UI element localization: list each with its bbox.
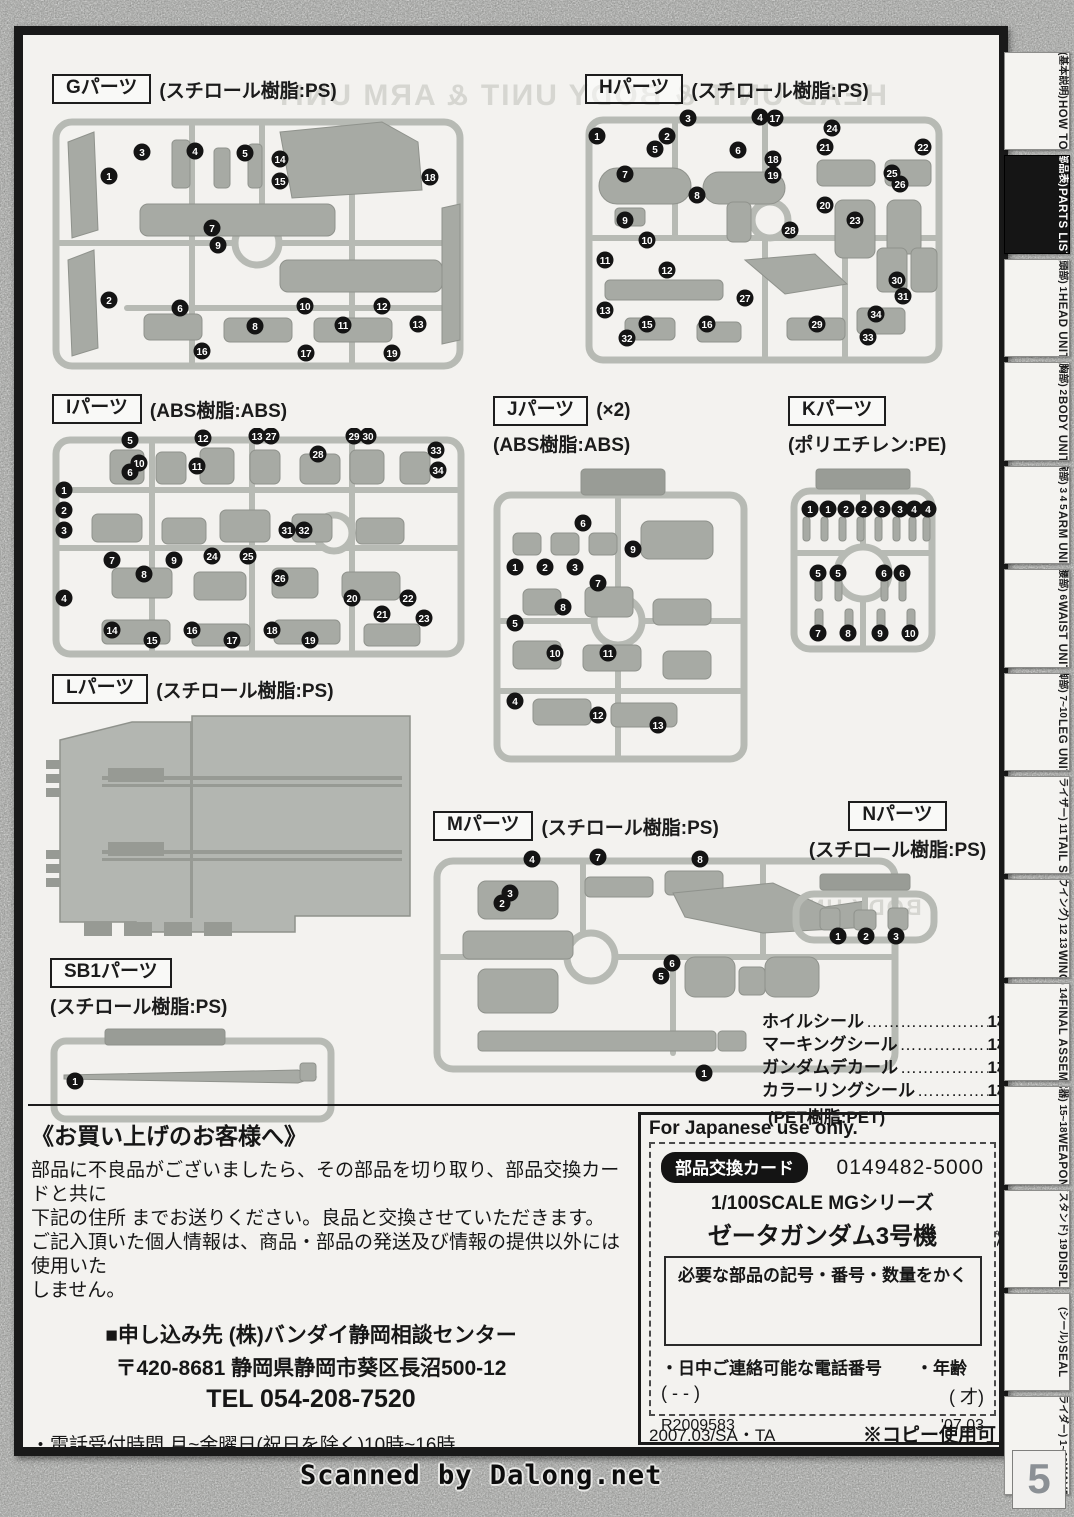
part-number-callout: 11 (335, 317, 352, 334)
tab-label-en: WING (1055, 950, 1068, 978)
svg-text:1: 1 (807, 505, 813, 516)
part-number-callout: 28 (782, 222, 799, 239)
svg-text:18: 18 (424, 173, 436, 184)
part-number-callout: 1 (67, 1073, 84, 1090)
svg-text:17: 17 (769, 114, 781, 125)
tab-label-jp: (ウイング) 12 13 (1057, 879, 1069, 948)
scanned-manual-page: { "document": { "bleed_text": "HEAD UNIT… (0, 0, 1074, 1517)
sprue-G-material: (スチロール樹脂:PS) (159, 76, 336, 103)
scan-watermark: Scanned by Dalong.net (300, 1460, 662, 1491)
sprue-SB1-runner-diagram: 1 (50, 1023, 335, 1131)
phone-number: TEL 054-208-7520 (31, 1385, 591, 1414)
phone-notes: ・電話受付時間 月~金曜日(祝日を除く)10時~16時 ・電話番号はよく確かめて… (31, 1432, 637, 1447)
section-tab-body-unit: (胸部) 2BODY UNIT (1004, 362, 1070, 460)
section-tab-weapons: (武器) 15~18WEAPONS (1004, 1086, 1070, 1184)
seal-count: 1枚 (988, 1010, 999, 1033)
svg-text:4: 4 (925, 505, 931, 516)
part-number-callout: 5 (653, 968, 670, 985)
part-number-callout: 13 (597, 302, 614, 319)
part-number-callout: 14 (272, 151, 289, 168)
part-number-callout: 4 (524, 851, 541, 868)
section-tab-how-to: (基本説明)HOW TO (1004, 52, 1070, 150)
tab-label-jp: (頭部) 1 (1057, 259, 1069, 292)
tab-label-jp: (部品表) (1057, 155, 1069, 186)
svg-text:1: 1 (835, 932, 841, 943)
part-number-callout: 34 (868, 306, 885, 323)
part-number-callout: 27 (737, 290, 754, 307)
part-number-callout: 12 (374, 298, 391, 315)
notice-heading: 《お買い上げのお客様へ》 (31, 1117, 637, 1151)
sprue-L-material: (スチロール樹脂:PS) (156, 676, 333, 703)
svg-text:4: 4 (911, 505, 917, 516)
tab-label-en: SEAL (1055, 1345, 1068, 1378)
part-number-callout: 14 (104, 622, 121, 639)
part-number-callout: 9 (166, 552, 183, 569)
part-number-callout: 24 (824, 120, 841, 137)
part-number-callout: 26 (272, 570, 289, 587)
sprue-I-label: Iパーツ (52, 394, 142, 424)
svg-text:3: 3 (572, 563, 578, 574)
part-number-callout: 5 (507, 615, 524, 632)
section-tab-leg-unit: (脚部) 7~10LEG UNIT (1004, 673, 1070, 771)
sprue-J-runner-diagram: 61239785101141213 (493, 461, 748, 766)
svg-text:15: 15 (274, 177, 286, 188)
sprue-K-runner-diagram: 11223344556678910 (788, 461, 938, 661)
part-number-callout: 13 (650, 717, 667, 734)
part-number-callout: 18 (264, 622, 281, 639)
svg-text:6: 6 (669, 959, 675, 970)
phone-blank: ( - - ) (661, 1383, 700, 1409)
dot-leader: ………………… (898, 1033, 988, 1056)
part-number-callout: 7 (590, 849, 607, 866)
sprue-H-material: (スチロール樹脂:PS) (691, 76, 868, 103)
page-frame: HEAD UNIT & BODY UNIT & ARM UNIT BODY UN… (14, 26, 1008, 1456)
part-number-callout: 2 (494, 895, 511, 912)
part-number-callout: 3 (567, 559, 584, 576)
sprue-N-label: Nパーツ (848, 801, 946, 831)
part-number-callout: 1 (830, 928, 847, 945)
section-tab-parts-list: (部品表)PARTS LIST (1004, 155, 1070, 253)
age-blank: ( 才) (949, 1383, 984, 1409)
part-number-callout: 19 (384, 345, 401, 362)
sprue-H-label: Hパーツ (585, 74, 683, 104)
part-number-callout: 15 (144, 632, 161, 649)
note-line: ・電話受付時間 月~金曜日(祝日を除く)10時~16時 (31, 1432, 637, 1447)
svg-text:4: 4 (61, 594, 67, 605)
svg-text:5: 5 (127, 436, 133, 447)
tab-label-jp: (ディスプレイスタンド) 19 (1057, 1190, 1069, 1250)
svg-text:24: 24 (826, 124, 838, 135)
svg-text:4: 4 (757, 113, 763, 124)
tab-label-jp: (脚部) 7~10 (1057, 673, 1069, 719)
svg-text:3: 3 (893, 932, 899, 943)
part-number-callout: 19 (765, 167, 782, 184)
section-tab-seal: (シール)SEAL (1004, 1293, 1070, 1391)
svg-text:7: 7 (109, 556, 115, 567)
svg-text:5: 5 (835, 569, 841, 580)
svg-text:7: 7 (595, 853, 601, 864)
svg-text:16: 16 (701, 320, 713, 331)
tab-label-en: HEAD UNIT (1055, 293, 1068, 358)
exchange-card-badge: 部品交換カード (661, 1152, 808, 1183)
part-number-callout: 21 (817, 139, 834, 156)
part-number-callout: 8 (136, 566, 153, 583)
svg-text:5: 5 (652, 145, 658, 156)
part-number-callout: 15 (272, 173, 289, 190)
notice-line: ご記入頂いた個人情報は、商品・部品の発送及び情報の提供以外には使用いた (31, 1231, 637, 1279)
sprue-L-runner-diagram (40, 708, 415, 948)
part-number-callout: 34 (430, 462, 447, 479)
part-number-callout: 31 (895, 288, 912, 305)
customer-notice: 《お買い上げのお客様へ》 部品に不良品がございましたら、その部品を切り取り、部品… (31, 1117, 637, 1447)
svg-text:11: 11 (338, 321, 349, 332)
parts-write-in-box: 必要な部品の記号・番号・数量をかく (664, 1256, 982, 1346)
part-number-callout: 12 (195, 430, 212, 447)
part-number-callout: 27 (263, 428, 280, 445)
page-number: 5 (1012, 1450, 1066, 1509)
svg-text:8: 8 (697, 855, 703, 866)
part-number-callout: 9 (617, 212, 634, 229)
svg-text:6: 6 (127, 468, 133, 479)
svg-text:6: 6 (580, 519, 586, 530)
svg-text:2: 2 (843, 505, 849, 516)
part-number-callout: 4 (56, 590, 73, 607)
sprue-I: Iパーツ(ABS樹脂:ABS)5121327293010611283334123… (52, 394, 467, 663)
seal-count: 1枚 (988, 1079, 999, 1102)
part-number-callout: 9 (210, 237, 227, 254)
part-number-callout: 17 (767, 110, 784, 127)
part-number-callout: 33 (428, 442, 445, 459)
sprue-SB1-material: (スチロール樹脂:PS) (50, 992, 335, 1019)
reference-number: R2009583 (661, 1417, 735, 1435)
svg-text:1: 1 (701, 1069, 707, 1080)
svg-text:1: 1 (106, 172, 112, 183)
seal-list-item: カラーリングシール………………1枚 (762, 1079, 999, 1102)
svg-text:14: 14 (274, 155, 286, 166)
svg-text:21: 21 (376, 610, 388, 621)
part-number-callout: 8 (692, 851, 709, 868)
svg-text:9: 9 (630, 545, 636, 556)
tab-label-jp: (腰部) 6 (1057, 569, 1069, 599)
svg-text:30: 30 (891, 276, 903, 287)
svg-text:14: 14 (106, 626, 118, 637)
svg-text:23: 23 (849, 216, 861, 227)
svg-text:4: 4 (529, 855, 535, 866)
svg-text:3: 3 (685, 114, 691, 125)
sprue-I-header: Iパーツ(ABS樹脂:ABS) (52, 394, 467, 424)
svg-text:3: 3 (139, 148, 145, 159)
sprue-G-runner-diagram: 13451415187926810111213161719 (52, 108, 467, 373)
svg-text:5: 5 (815, 569, 821, 580)
address-line: ■申し込み先 (株)バンダイ静岡相談センター (31, 1319, 591, 1349)
svg-text:6: 6 (177, 304, 183, 315)
svg-text:16: 16 (186, 626, 198, 637)
part-number-callout: 6 (876, 565, 893, 582)
svg-text:10: 10 (299, 302, 311, 313)
part-number-callout: 6 (122, 464, 139, 481)
part-number-callout: 16 (194, 343, 211, 360)
tab-label-en: PARTS LIST (1055, 188, 1068, 254)
part-number-callout: 5 (810, 565, 827, 582)
svg-text:13: 13 (599, 306, 611, 317)
page: HEAD UNIT & BODY UNIT & ARM UNIT BODY UN… (23, 35, 999, 1447)
svg-text:28: 28 (312, 450, 324, 461)
part-number-callout: 17 (298, 345, 315, 362)
svg-text:7: 7 (209, 224, 215, 235)
svg-text:3: 3 (897, 505, 903, 516)
svg-text:5: 5 (658, 972, 664, 983)
section-tab-arm-unit: (腕部) 3 4 5ARM UNIT (1004, 466, 1070, 564)
svg-text:11: 11 (600, 256, 611, 267)
card-date: '07.03 (941, 1417, 984, 1435)
svg-text:5: 5 (242, 149, 248, 160)
section-tab-final-assemble: (完成) 14FINAL ASSEMBLE (1004, 983, 1070, 1081)
svg-text:15: 15 (146, 636, 158, 647)
svg-text:2: 2 (861, 505, 867, 516)
tab-label-en: FINAL ASSEMBLE (1055, 999, 1068, 1081)
part-number-callout: 16 (184, 622, 201, 639)
svg-text:3: 3 (879, 505, 885, 516)
tab-label-en: ARM UNIT (1055, 511, 1068, 564)
sprue-J-material: (ABS樹脂:ABS) (493, 430, 748, 457)
section-tab-display-stand: (ディスプレイスタンド) 19DISPLAY STAND (1004, 1190, 1070, 1288)
part-number-callout: 5 (647, 141, 664, 158)
svg-text:3: 3 (61, 526, 67, 537)
part-number-callout: 6 (894, 565, 911, 582)
part-number-callout: 6 (575, 515, 592, 532)
part-number-callout: 12 (590, 707, 607, 724)
svg-text:12: 12 (376, 302, 388, 313)
svg-text:1: 1 (825, 505, 831, 516)
sprue-I-material: (ABS樹脂:ABS) (150, 396, 287, 423)
sprue-N-header: Nパーツ (790, 801, 999, 831)
part-number-callout: 3 (134, 144, 151, 161)
part-number-callout: 32 (296, 522, 313, 539)
part-number-callout: 7 (104, 552, 121, 569)
svg-text:6: 6 (735, 146, 741, 157)
seal-list-item: ホイルシール……………………1枚 (762, 1010, 999, 1033)
svg-text:2: 2 (542, 563, 548, 574)
part-number-callout: 15 (639, 316, 656, 333)
part-number-callout: 3 (874, 501, 891, 518)
part-number-callout: 25 (240, 548, 257, 565)
svg-text:22: 22 (402, 594, 414, 605)
sprue-H-runner-diagram: 1234175618198212224252620237910111227281… (585, 108, 945, 368)
scissors-icon: ✂ (987, 1230, 999, 1248)
tab-label-en: TAIL STABILIZER (1055, 835, 1068, 875)
part-number-callout: 20 (344, 590, 361, 607)
part-number-callout: 1 (802, 501, 819, 518)
product-code: 0149482-5000 (837, 1156, 984, 1180)
part-number-callout: 29 (809, 316, 826, 333)
tab-label-jp: (シール) (1057, 1307, 1069, 1344)
part-number-callout: 7 (590, 575, 607, 592)
svg-text:8: 8 (694, 191, 700, 202)
svg-text:31: 31 (897, 292, 909, 303)
part-number-callout: 20 (817, 197, 834, 214)
part-number-callout: 2 (659, 128, 676, 145)
sprue-L-header: Lパーツ(スチロール樹脂:PS) (52, 674, 415, 704)
tab-label-jp: (胸部) 2 (1057, 362, 1069, 394)
svg-text:2: 2 (664, 132, 670, 143)
section-divider (28, 1104, 999, 1106)
seal-list-item: マーキングシール…………………1枚 (762, 1033, 999, 1056)
part-number-callout: 5 (830, 565, 847, 582)
svg-text:17: 17 (226, 636, 238, 647)
seal-name: マーキングシール (762, 1033, 898, 1056)
svg-text:1: 1 (512, 563, 518, 574)
sprue-SB1-label: SB1パーツ (50, 958, 172, 988)
part-number-callout: 11 (189, 458, 206, 475)
svg-text:26: 26 (274, 574, 286, 585)
part-number-callout: 8 (840, 625, 857, 642)
svg-text:32: 32 (621, 334, 633, 345)
svg-text:22: 22 (917, 143, 929, 154)
part-number-callout: 32 (619, 330, 636, 347)
part-number-callout: 17 (224, 632, 241, 649)
svg-text:28: 28 (784, 226, 796, 237)
age-field-label: ・年齢 (916, 1354, 967, 1379)
part-number-callout: 10 (547, 645, 564, 662)
part-number-callout: 23 (416, 610, 433, 627)
model-name: ゼータガンダム3号機 (661, 1216, 984, 1251)
svg-text:8: 8 (845, 629, 851, 640)
svg-text:10: 10 (549, 649, 561, 660)
svg-text:16: 16 (196, 347, 208, 358)
part-number-callout: 11 (597, 252, 614, 269)
sprue-K-label: Kパーツ (788, 396, 886, 426)
svg-text:6: 6 (899, 569, 905, 580)
series-name: 1/100SCALE MGシリーズ (661, 1188, 984, 1215)
svg-text:12: 12 (661, 266, 673, 277)
sprue-K: Kパーツ(ポリエチレン:PE)11223344556678910 (788, 396, 946, 661)
svg-text:33: 33 (862, 333, 874, 344)
tab-label-en: HOW TO (1055, 100, 1068, 150)
svg-text:4: 4 (512, 697, 518, 708)
part-number-callout: 19 (302, 632, 319, 649)
section-tab-head-unit: (頭部) 1HEAD UNIT (1004, 259, 1070, 357)
address-line: 〒420-8681 静岡県静岡市葵区長沼500-12 (31, 1352, 591, 1382)
svg-text:25: 25 (242, 552, 254, 563)
seal-count: 1枚 (988, 1033, 999, 1056)
svg-text:11: 11 (603, 649, 614, 660)
svg-text:26: 26 (894, 180, 906, 191)
svg-text:15: 15 (641, 320, 653, 331)
part-number-callout: 30 (889, 272, 906, 289)
service-center-address: ■申し込み先 (株)バンダイ静岡相談センター 〒420-8681 静岡県静岡市葵… (31, 1319, 591, 1414)
svg-text:12: 12 (592, 711, 604, 722)
svg-text:29: 29 (811, 320, 823, 331)
sprue-H-header: Hパーツ(スチロール樹脂:PS) (585, 74, 945, 104)
part-number-callout: 24 (204, 548, 221, 565)
tab-label-en: WEAPONS (1055, 1133, 1068, 1184)
part-number-callout: 3 (680, 110, 697, 127)
part-number-callout: 21 (374, 606, 391, 623)
part-number-callout: 2 (856, 501, 873, 518)
svg-text:7: 7 (622, 170, 628, 181)
seal-name: ホイルシール (762, 1010, 864, 1033)
part-number-callout: 2 (101, 292, 118, 309)
svg-text:20: 20 (346, 594, 358, 605)
svg-text:21: 21 (819, 143, 831, 154)
svg-text:9: 9 (622, 216, 628, 227)
part-number-callout: 1 (820, 501, 837, 518)
part-number-callout: 12 (659, 262, 676, 279)
parts-exchange-card: For Japanese use only. 部品交換カード 0149482-5… (638, 1112, 999, 1445)
seal-name: カラーリングシール (762, 1079, 915, 1102)
part-number-callout: 28 (310, 446, 327, 463)
part-number-callout: 6 (172, 300, 189, 317)
svg-text:5: 5 (512, 619, 518, 630)
dot-leader: ………………… (898, 1056, 988, 1079)
svg-text:19: 19 (767, 171, 779, 182)
svg-text:10: 10 (904, 629, 916, 640)
tab-label-en: DISPLAY STAND (1055, 1251, 1068, 1288)
svg-text:2: 2 (61, 506, 67, 517)
svg-text:2: 2 (106, 296, 112, 307)
part-number-callout: 7 (204, 220, 221, 237)
svg-text:11: 11 (192, 462, 203, 473)
svg-text:6: 6 (881, 569, 887, 580)
sprue-G-label: Gパーツ (52, 74, 151, 104)
svg-text:2: 2 (499, 899, 505, 910)
part-number-callout: 2 (858, 928, 875, 945)
sprue-SB1-header: SB1パーツ (50, 958, 335, 988)
svg-text:23: 23 (418, 614, 430, 625)
svg-text:8: 8 (560, 603, 566, 614)
part-number-callout: 10 (902, 625, 919, 642)
part-number-callout: 7 (617, 166, 634, 183)
sprue-H: Hパーツ(スチロール樹脂:PS)123417561819821222425262… (585, 74, 945, 368)
svg-text:4: 4 (192, 147, 198, 158)
sprue-N-material: (スチロール樹脂:PS) (790, 835, 999, 862)
svg-text:1: 1 (61, 486, 67, 497)
phone-field-label: ・日中ご連絡可能な電話番号 (661, 1354, 882, 1379)
sprue-J-label: Jパーツ (493, 396, 588, 426)
seal-list: ホイルシール……………………1枚マーキングシール…………………1枚ガンダムデカー… (762, 1010, 999, 1128)
part-number-callout: 11 (600, 645, 617, 662)
part-number-callout: 23 (847, 212, 864, 229)
sprue-K-material: (ポリエチレン:PE) (788, 430, 946, 457)
part-number-callout: 16 (699, 316, 716, 333)
sprue-J: Jパーツ(×2)(ABS樹脂:ABS)61239785101141213 (493, 396, 748, 766)
part-number-callout: 8 (247, 318, 264, 335)
tab-label-en: LEG UNIT (1055, 719, 1068, 771)
svg-text:30: 30 (362, 432, 374, 443)
section-tab-wing: (ウイング) 12 13WING (1004, 879, 1070, 977)
svg-text:32: 32 (298, 526, 310, 537)
section-tab-tail-stabilizer: (テールスタビライザー) 11TAIL STABILIZER (1004, 776, 1070, 874)
part-number-callout: 33 (860, 329, 877, 346)
tab-label-jp: (武器) 15~18 (1057, 1086, 1069, 1132)
part-number-callout: 6 (730, 142, 747, 159)
svg-text:19: 19 (386, 349, 398, 360)
svg-text:9: 9 (877, 629, 883, 640)
svg-text:1: 1 (72, 1077, 78, 1088)
part-number-callout: 13 (410, 316, 427, 333)
svg-text:13: 13 (412, 320, 424, 331)
seal-count: 1枚 (988, 1056, 999, 1079)
card-cutout: 部品交換カード 0149482-5000 1/100SCALE MGシリーズ ゼ… (649, 1142, 996, 1416)
svg-text:9: 9 (171, 556, 177, 567)
sprue-K-header: Kパーツ (788, 396, 946, 426)
part-number-callout: 6 (664, 955, 681, 972)
part-number-callout: 10 (297, 298, 314, 315)
svg-text:10: 10 (641, 236, 653, 247)
sprue-L: Lパーツ(スチロール樹脂:PS) (52, 674, 415, 948)
sprue-J-count-note: (×2) (596, 400, 630, 422)
sprue-L-label: Lパーツ (52, 674, 148, 704)
